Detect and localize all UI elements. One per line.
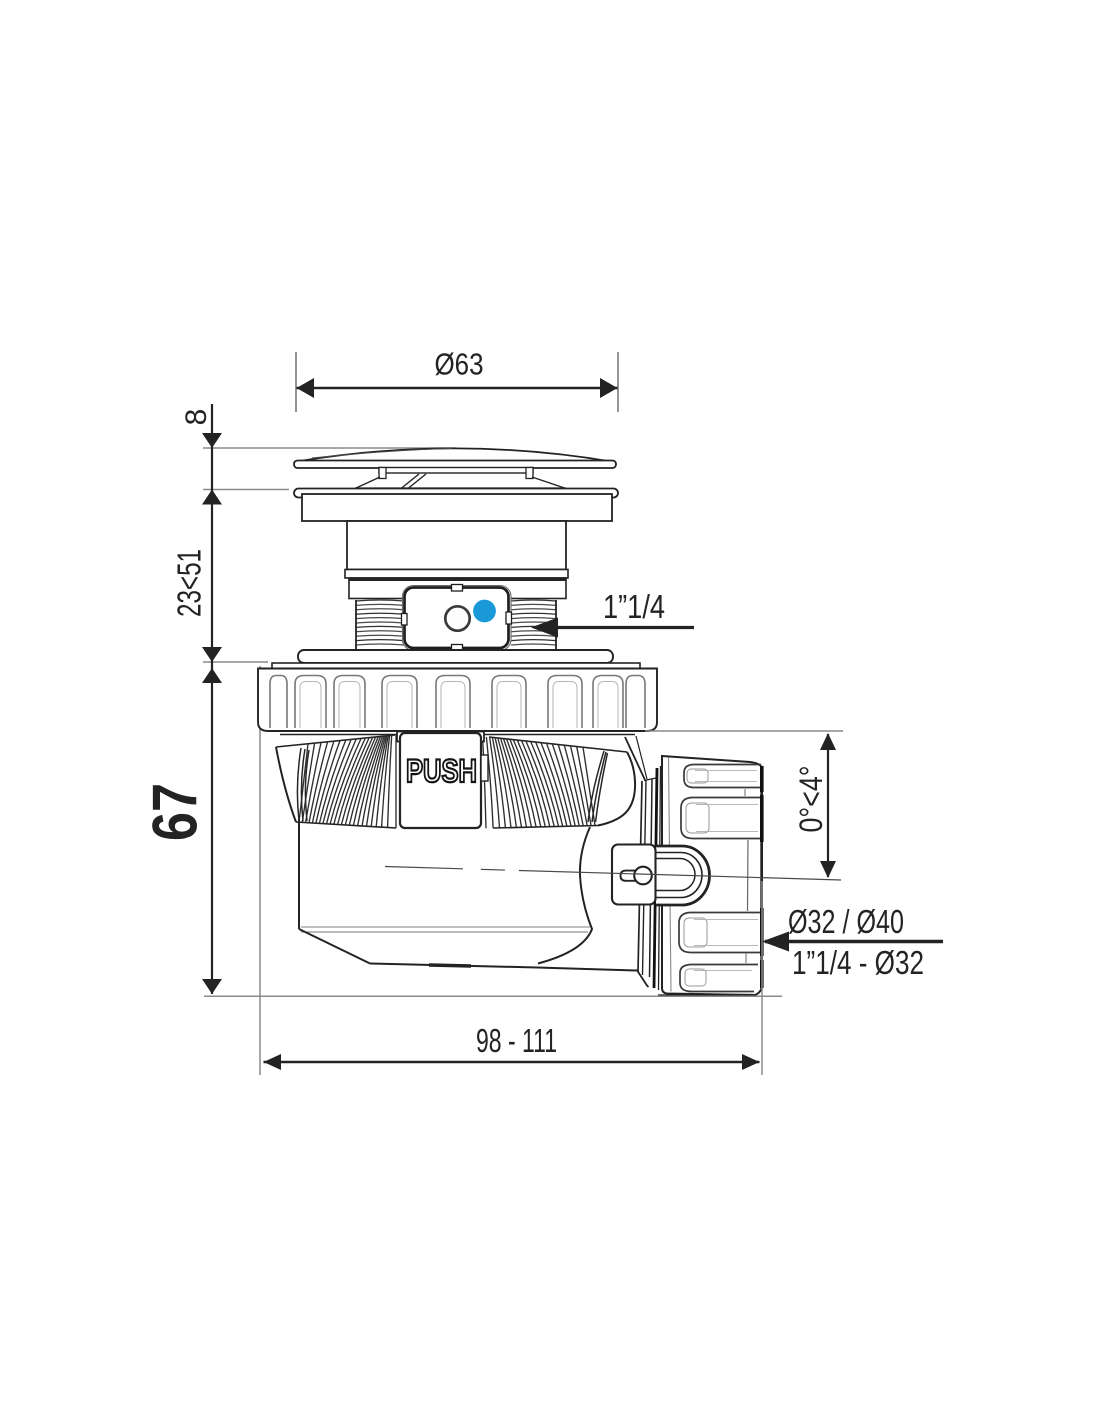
svg-text:23<51: 23<51: [171, 549, 208, 617]
svg-text:0°<4°: 0°<4°: [793, 766, 829, 833]
svg-text:1”1/4 - Ø32: 1”1/4 - Ø32: [792, 944, 924, 981]
svg-text:8: 8: [180, 409, 213, 426]
svg-text:Ø63: Ø63: [435, 347, 484, 382]
svg-text:PUSH: PUSH: [406, 753, 477, 789]
svg-text:67: 67: [141, 783, 211, 841]
svg-text:Ø32 / Ø40: Ø32 / Ø40: [788, 903, 904, 940]
svg-text:1”1/4: 1”1/4: [603, 588, 665, 625]
svg-text:98 - 111: 98 - 111: [476, 1022, 557, 1059]
